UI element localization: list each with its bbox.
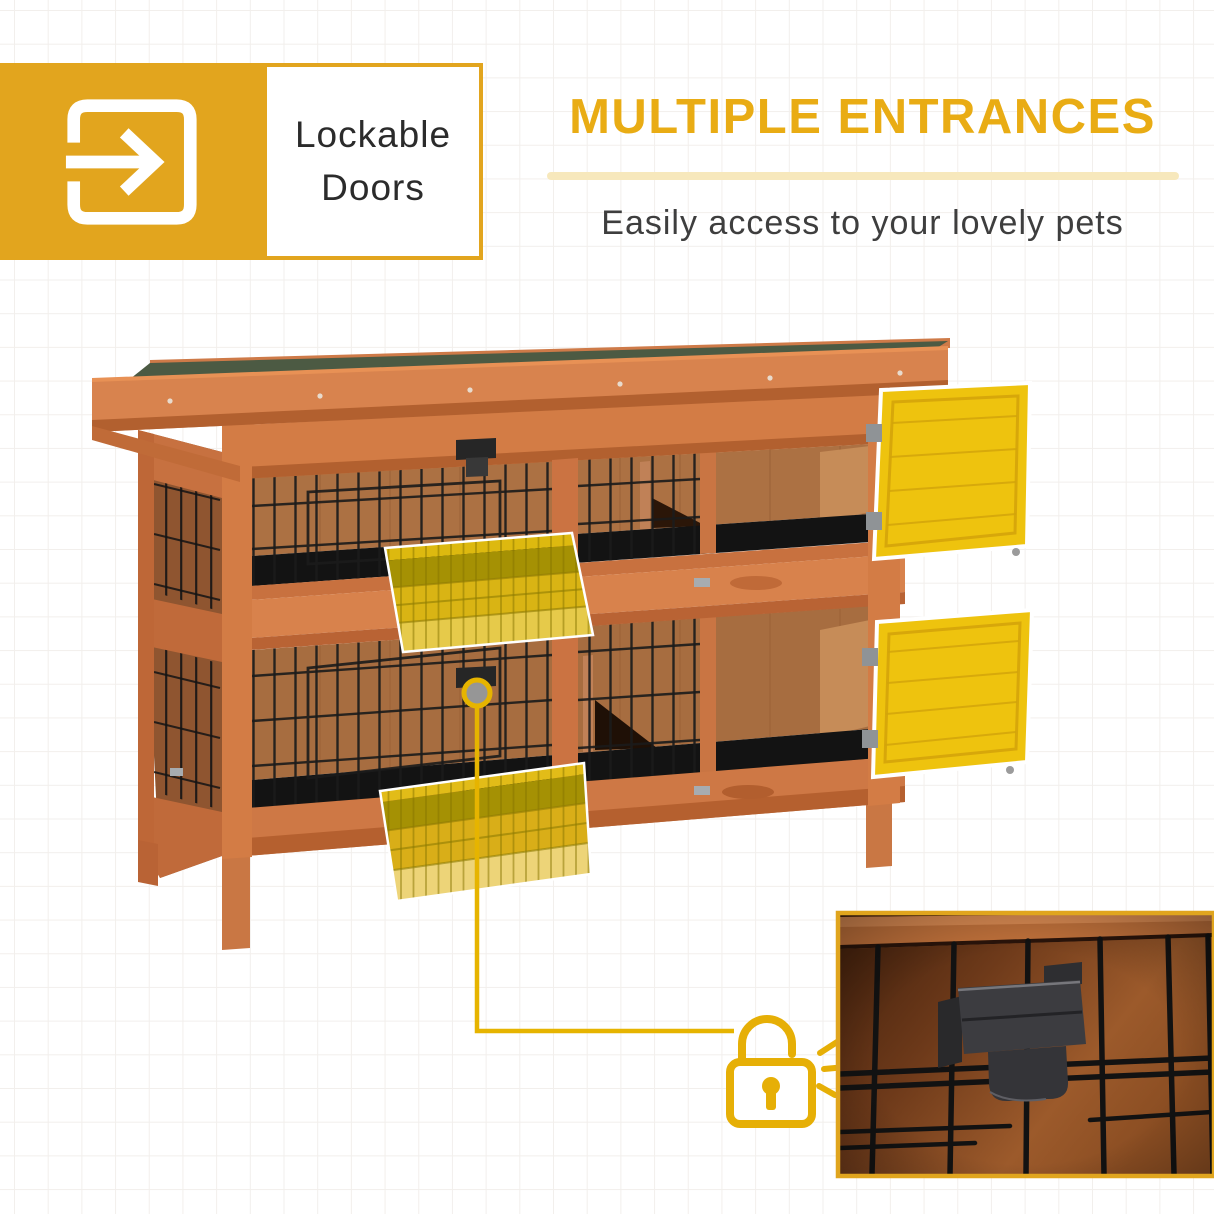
- latch-hardware: [694, 578, 710, 587]
- upper-drawer-handle: [730, 576, 782, 590]
- hutch-photo: [92, 338, 1032, 950]
- lower-open-door: [862, 610, 1032, 777]
- hutch-illustration: [0, 0, 1214, 1214]
- door-hinge: [866, 512, 882, 530]
- door-hinge: [862, 648, 878, 666]
- infographic-page: Lockable Doors MULTIPLE ENTRANCES Easily…: [0, 0, 1214, 1214]
- latch-hardware: [694, 786, 710, 795]
- lower-drawer-handle: [722, 785, 774, 799]
- upper-tray-highlight: [385, 533, 593, 652]
- latch-hardware: [170, 768, 183, 776]
- upper-open-door: [866, 383, 1030, 559]
- door-hinge: [862, 730, 878, 748]
- lock-closeup-inset: [838, 913, 1214, 1176]
- padlock-icon: [730, 1019, 846, 1124]
- door-hinge: [866, 424, 882, 442]
- lock-marker-circle: [464, 680, 490, 706]
- hutch-left-end-panel: [138, 430, 222, 878]
